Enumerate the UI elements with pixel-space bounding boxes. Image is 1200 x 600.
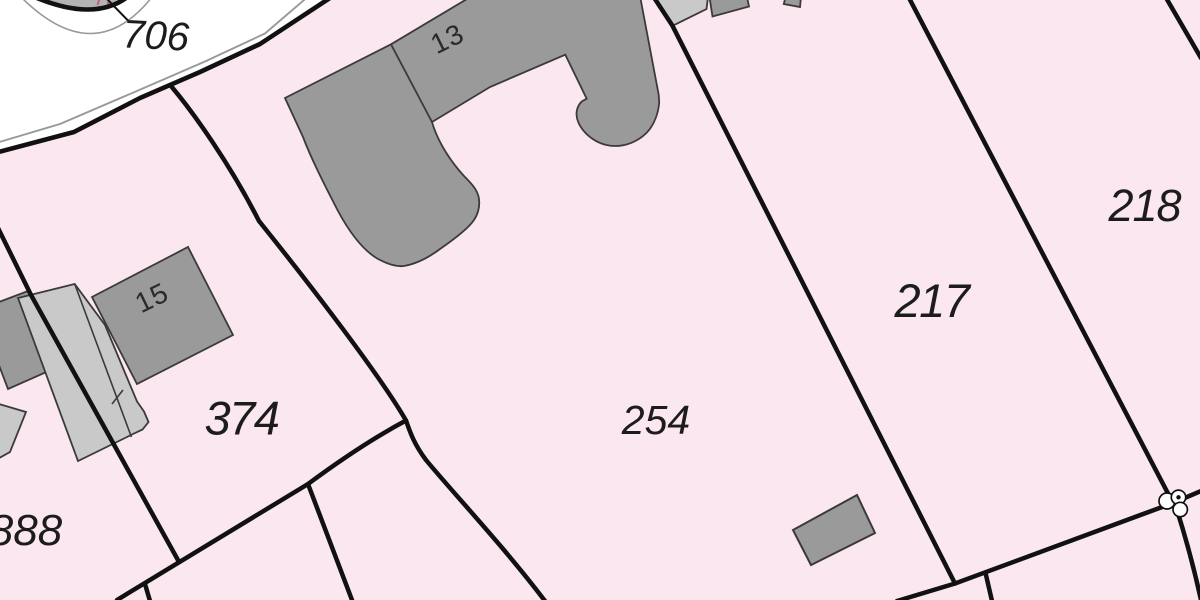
svg-text:374: 374 [205,392,279,445]
svg-text:888: 888 [0,506,63,555]
svg-text:254: 254 [621,397,690,443]
svg-text:218: 218 [1107,180,1181,231]
svg-text:217: 217 [894,274,972,327]
svg-text:706: 706 [121,12,191,59]
